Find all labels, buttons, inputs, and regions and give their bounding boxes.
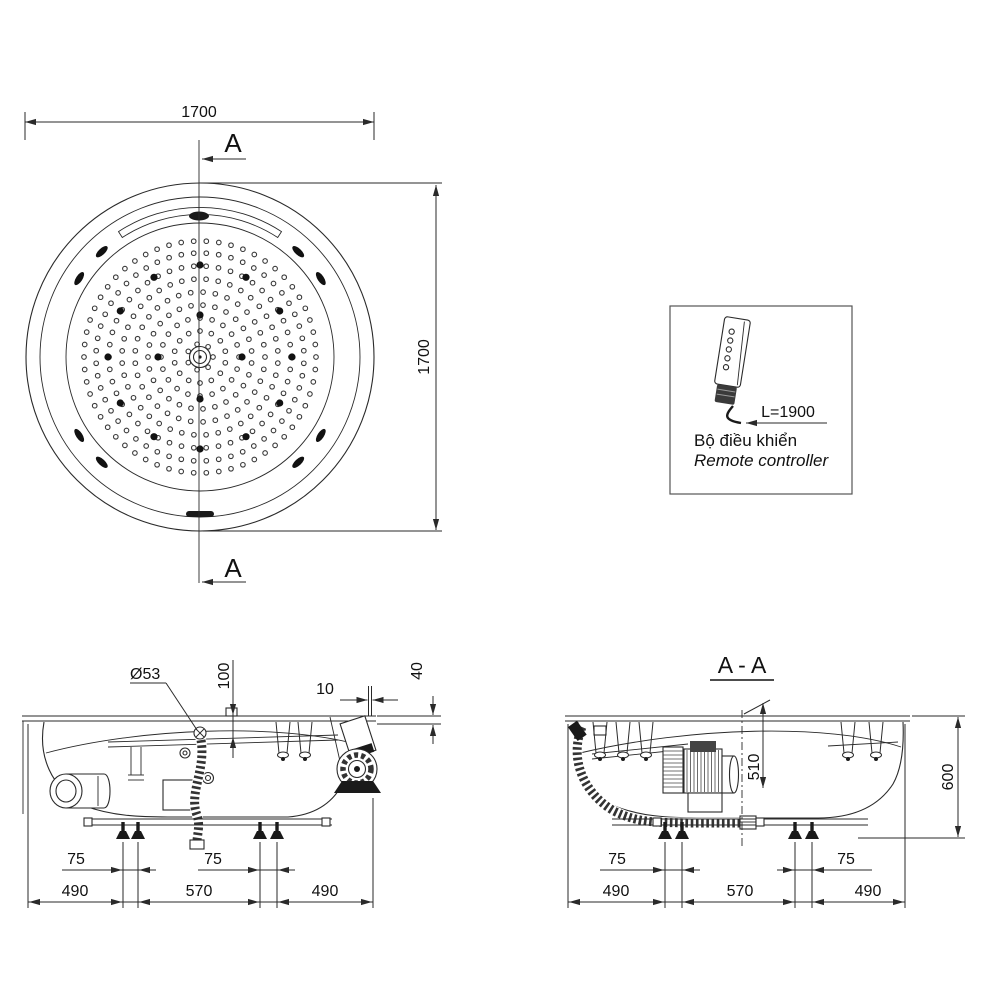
jet-hole: [110, 379, 115, 384]
jet-hole: [213, 405, 218, 410]
jet-hole: [314, 355, 319, 360]
dim-text-490: 490: [603, 883, 630, 900]
foot-pad: [805, 831, 819, 839]
jet-hole: [147, 395, 152, 400]
jet-hole: [114, 391, 119, 396]
jet-hole: [270, 325, 275, 330]
jet-hole: [216, 252, 221, 257]
jet-hole: [221, 323, 226, 328]
jet-hole: [241, 383, 246, 388]
jet-hole: [155, 247, 160, 252]
jet-hole: [140, 385, 145, 390]
jet-hole: [290, 425, 295, 430]
jet-hole: [201, 420, 206, 425]
jet-hole: [177, 402, 182, 407]
jet-hole: [276, 361, 281, 366]
jet-hole: [273, 443, 278, 448]
jet-hole: [198, 381, 203, 386]
jet-hole: [288, 342, 293, 347]
dim-text-height: 1700: [416, 339, 433, 375]
jet-hole: [311, 330, 316, 335]
jet-hole: [131, 314, 136, 319]
foot-pad: [253, 831, 267, 839]
jet-hole: [147, 315, 152, 320]
water-jet: [104, 353, 111, 360]
jet-hole: [297, 415, 302, 420]
jet-hole: [157, 288, 162, 293]
water-jet: [276, 307, 283, 314]
jet-hole: [180, 279, 185, 284]
pump-face: [50, 774, 82, 808]
jet-hole: [235, 408, 240, 413]
foot-stem: [258, 822, 261, 832]
jet-hole: [201, 303, 206, 308]
jet-hole: [252, 266, 257, 271]
jet-hole: [273, 266, 278, 271]
dim-chain-490-570-490: 490 570 490: [28, 883, 373, 902]
dim-text-40: 40: [409, 662, 426, 680]
jet-hole: [103, 312, 108, 317]
jet-hole: [120, 349, 125, 354]
jet-tip: [621, 757, 625, 761]
foot-stem: [793, 822, 796, 832]
section-title: A - A: [718, 652, 767, 678]
water-jet: [196, 311, 203, 318]
jet-hole: [302, 361, 307, 366]
dim-510: 510: [744, 700, 770, 788]
jet-hole: [262, 273, 267, 278]
jet-hole: [94, 348, 99, 353]
jet-hole: [252, 320, 257, 325]
jet-body: [869, 722, 883, 753]
dim-10: 10: [316, 681, 398, 716]
leader-line: [166, 683, 197, 730]
jet-hole: [240, 260, 245, 265]
jet-hole: [293, 397, 298, 402]
jet-hole: [263, 259, 268, 264]
jet-hole: [252, 252, 257, 257]
blower-hub-dot: [354, 766, 360, 772]
jet-hole: [167, 243, 172, 248]
dim-text-490: 490: [62, 883, 89, 900]
dim-text-490: 490: [312, 883, 339, 900]
jet-hole: [127, 412, 132, 417]
jet-hole: [124, 281, 129, 286]
overflow-slot: [186, 511, 214, 517]
jet-hole: [229, 378, 234, 383]
jet-hole: [158, 388, 163, 393]
jet-hole: [287, 409, 292, 414]
dim-text-600: 600: [940, 764, 957, 791]
dim-text-570: 570: [727, 883, 754, 900]
jet-body: [841, 722, 855, 753]
jet-hole: [235, 302, 240, 307]
jet-hole: [229, 255, 234, 260]
jet-hole: [204, 277, 209, 282]
jet-hole: [175, 323, 180, 328]
jet-hole: [98, 386, 103, 391]
jet-hole: [216, 266, 221, 271]
dim-text-75: 75: [67, 851, 85, 868]
rail-bolt: [653, 818, 661, 826]
rail-bolt: [84, 818, 92, 826]
air-blower: [330, 716, 381, 793]
foot-stem: [275, 822, 278, 832]
jet-hole: [262, 367, 267, 372]
jet-hole: [131, 396, 136, 401]
jet-hole: [144, 444, 149, 449]
jet-hole: [280, 419, 285, 424]
jet-hole: [179, 444, 184, 449]
jet-hole: [204, 251, 209, 256]
jet-hole: [228, 440, 233, 445]
jet-hole: [189, 304, 194, 309]
jet-hole: [123, 443, 128, 448]
jet-hole: [161, 367, 166, 372]
motor-bracket: [688, 793, 722, 812]
jet-hole: [186, 378, 191, 383]
jet-hole: [271, 428, 276, 433]
jet-hole: [213, 418, 218, 423]
drain-hose: [195, 735, 202, 840]
jet-hole: [204, 471, 209, 476]
jet-hole: [114, 275, 119, 280]
dim-text-100: 100: [216, 663, 233, 690]
hose-floor-fitting: [190, 840, 204, 849]
jet-hole: [179, 457, 184, 462]
jet-hole: [155, 450, 160, 455]
jet-hole: [217, 469, 222, 474]
bathtub-technical-drawing: A A 1700 1700: [0, 0, 1000, 1000]
jet-hole: [213, 292, 218, 297]
jet-hole: [218, 371, 223, 376]
jet-hole: [84, 330, 89, 335]
jet-hole: [258, 379, 263, 384]
jet-body: [276, 722, 290, 753]
jet-hole: [133, 451, 138, 456]
dim-text-570: 570: [186, 883, 213, 900]
jet-hole: [122, 337, 127, 342]
jet-hole: [186, 392, 191, 397]
jet-hole: [216, 279, 221, 284]
jet-hole: [186, 318, 191, 323]
jet-hole: [98, 415, 103, 420]
jet-hole: [239, 288, 244, 293]
jet-hole: [274, 373, 279, 378]
top-view: A A 1700 1700: [25, 104, 442, 583]
jet-hole: [216, 457, 221, 462]
jet-hole: [216, 444, 221, 449]
jet-hole: [213, 305, 218, 310]
jet-hole: [201, 407, 206, 412]
jet-hole: [239, 421, 244, 426]
jet-hole: [288, 367, 293, 372]
dim-text-drain: Ø53: [130, 666, 160, 683]
jet-hole: [145, 429, 150, 434]
jet-hole: [188, 290, 193, 295]
foot-stem: [663, 822, 666, 832]
jet-hole: [210, 318, 215, 323]
jet-hole: [281, 391, 286, 396]
dim-75-left: 75: [600, 851, 700, 870]
jet-hole: [147, 414, 152, 419]
rim-oval-jet: [94, 244, 109, 259]
jet-hole: [140, 325, 145, 330]
water-jet: [196, 445, 203, 452]
rim-oval-jet: [94, 455, 109, 470]
jet-hole: [186, 331, 191, 336]
jet-hole: [155, 404, 160, 409]
jet-hole: [143, 457, 148, 462]
jet-hole: [260, 288, 265, 293]
jet-hole: [224, 400, 229, 405]
jet-hole: [147, 367, 152, 372]
remote-controller-panel: L=1900 Bộ điều khiển Remote controller: [670, 306, 852, 494]
ext-line-slant: [744, 700, 770, 714]
water-jet: [242, 433, 249, 440]
jet-hole: [252, 444, 257, 449]
jet-hole: [108, 367, 113, 372]
jet-hole: [258, 331, 263, 336]
jet-hole: [146, 355, 151, 360]
jet-hole: [252, 457, 257, 462]
jet-hole: [300, 336, 305, 341]
jet-hole: [166, 378, 171, 383]
jet-hole: [302, 348, 307, 353]
jet-hole: [280, 291, 285, 296]
water-jet: [288, 353, 295, 360]
foot-pad: [270, 831, 284, 839]
jet-hole: [147, 295, 152, 300]
jet-hole: [260, 421, 265, 426]
jet-hole: [262, 437, 267, 442]
jet-hole: [276, 349, 281, 354]
jet-hole: [172, 361, 177, 366]
dim-width-1700: 1700: [25, 104, 374, 140]
jet-hole: [297, 386, 302, 391]
jet-hole: [105, 285, 110, 290]
jet-hole: [138, 304, 143, 309]
jet-hole: [248, 414, 253, 419]
jet-hole: [120, 361, 125, 366]
jet-hole: [122, 373, 127, 378]
jet-hole: [108, 342, 113, 347]
jet-hole: [192, 446, 197, 451]
jet-hole: [249, 361, 254, 366]
jet-hole: [225, 414, 230, 419]
jet-hole: [155, 463, 160, 468]
jet-hole: [247, 373, 252, 378]
jet-hole: [229, 243, 234, 248]
jet-hole: [233, 393, 238, 398]
jet-hole: [167, 313, 172, 318]
jet-hole: [257, 405, 262, 410]
jet-hole: [82, 367, 87, 372]
jet-hole: [155, 306, 160, 311]
jet-hole: [204, 433, 209, 438]
jet-hole: [134, 437, 139, 442]
deck-fitting: [594, 726, 606, 735]
jet-body: [298, 722, 312, 753]
jet-hole: [145, 280, 150, 285]
jet-hole: [308, 318, 313, 323]
jet-hole: [177, 371, 182, 376]
water-jet: [238, 353, 245, 360]
circulation-pump: [50, 774, 110, 808]
jet-hole: [179, 240, 184, 245]
jet-hole: [114, 318, 119, 323]
jet-hole: [300, 373, 305, 378]
jet-hole: [192, 277, 197, 282]
jet-hole: [155, 260, 160, 265]
jet-hole: [82, 342, 87, 347]
foot-pad: [675, 831, 689, 839]
section-view-a-a: A - A: [565, 652, 965, 908]
jet-hole: [151, 331, 156, 336]
dim-600: 600: [858, 716, 965, 838]
jet-hole: [229, 332, 234, 337]
dim-75-right: 75: [198, 851, 295, 870]
deck-fitting: [226, 708, 237, 716]
jet-hole: [157, 421, 162, 426]
jet-hole: [223, 361, 228, 366]
jet-hole: [136, 421, 141, 426]
jet-hole: [240, 450, 245, 455]
jet-hole: [192, 264, 197, 269]
jet-hole: [229, 454, 234, 459]
foot-stem: [680, 822, 683, 832]
dim-text-490: 490: [855, 883, 882, 900]
foot-stem: [136, 822, 139, 832]
technical-drawing-page: A A 1700 1700: [0, 0, 1000, 1000]
foot-stem: [121, 822, 124, 832]
jet-hole: [114, 435, 119, 440]
foot-stem: [810, 822, 813, 832]
jet-hole: [282, 435, 287, 440]
jet-hole: [84, 380, 89, 385]
jet-hole: [88, 318, 93, 323]
jet-hole: [271, 281, 276, 286]
jet-hole: [268, 297, 273, 302]
jet-hole: [282, 275, 287, 280]
jet-hole: [221, 386, 226, 391]
water-jet: [117, 399, 124, 406]
jet-hole: [176, 293, 181, 298]
jet-hole: [293, 312, 298, 317]
jet-hole: [134, 273, 139, 278]
motor-body: [684, 749, 722, 793]
jet-hole: [252, 390, 257, 395]
jet-hole: [177, 307, 182, 312]
jet-hole: [250, 280, 255, 285]
jet-body: [616, 722, 630, 753]
dim-text-510: 510: [746, 754, 763, 781]
cable-length-label: L=1900: [761, 404, 815, 421]
jet-hole: [179, 469, 184, 474]
jet-hole: [247, 337, 252, 342]
water-jet: [276, 399, 283, 406]
dim-text-75: 75: [204, 851, 222, 868]
rim-oval-jet: [314, 271, 328, 287]
blower-base: [334, 781, 381, 793]
jet-hole: [98, 295, 103, 300]
rim-oval-jet: [72, 271, 86, 287]
jet-hole: [228, 269, 233, 274]
jet-hole: [285, 379, 290, 384]
jet-hole: [303, 306, 308, 311]
jet-hole: [263, 451, 268, 456]
jet-hole: [233, 317, 238, 322]
rim-oval-jet: [72, 427, 86, 443]
jet-hole: [257, 304, 262, 309]
dim-chain-490-570-490: 490 570 490: [568, 883, 905, 902]
jet-hole: [95, 373, 100, 378]
jet-tip: [874, 757, 878, 761]
jet-hole: [313, 367, 318, 372]
jet-hole: [92, 306, 97, 311]
jet-hole: [172, 349, 177, 354]
jet-hole: [250, 429, 255, 434]
pump-volute: [663, 747, 683, 793]
motor-end-dome: [730, 756, 739, 793]
jet-tip: [303, 757, 307, 761]
jet-hole: [167, 454, 172, 459]
dim-text-75: 75: [837, 851, 855, 868]
jet-hole: [136, 288, 141, 293]
jet-hole: [241, 326, 246, 331]
section-marker-top-label: A: [224, 128, 242, 158]
motor-terminal-box: [690, 741, 716, 752]
rim-oval-jet: [291, 455, 306, 470]
jet-hole: [245, 310, 250, 315]
jet-hole: [175, 386, 180, 391]
jet-hole: [167, 396, 172, 401]
jet-hole: [133, 349, 138, 354]
dim-text-10: 10: [316, 681, 334, 698]
remote-label-vietnamese: Bộ điều khiển: [694, 431, 797, 450]
control-box: [163, 780, 193, 810]
dim-drain-53: Ø53: [130, 666, 197, 730]
jet-hole: [179, 252, 184, 257]
jet-hole: [204, 459, 209, 464]
jet-hole: [177, 339, 182, 344]
dim-40: 40: [377, 662, 441, 744]
jet-hole: [297, 324, 302, 329]
jet-hole: [109, 301, 114, 306]
jet-tip: [281, 757, 285, 761]
water-jet: [117, 307, 124, 314]
jet-tip: [846, 757, 850, 761]
jet-hole: [191, 251, 196, 256]
jet-hole: [223, 349, 228, 354]
jet-hole: [133, 259, 138, 264]
jet-hole: [191, 459, 196, 464]
jet-hole: [126, 325, 131, 330]
jet-hole: [138, 405, 143, 410]
jet-hole: [274, 337, 279, 342]
jet-hole: [241, 247, 246, 252]
jet-hole: [313, 342, 318, 347]
jet-hole: [167, 440, 172, 445]
rail-bolt: [756, 818, 764, 826]
jet-hole: [109, 409, 114, 414]
jet-hole: [116, 419, 121, 424]
jet-hole: [249, 349, 254, 354]
water-jet: [150, 274, 157, 281]
jet-hole: [268, 412, 273, 417]
jet-hole: [228, 427, 233, 432]
jet-hole: [225, 296, 230, 301]
